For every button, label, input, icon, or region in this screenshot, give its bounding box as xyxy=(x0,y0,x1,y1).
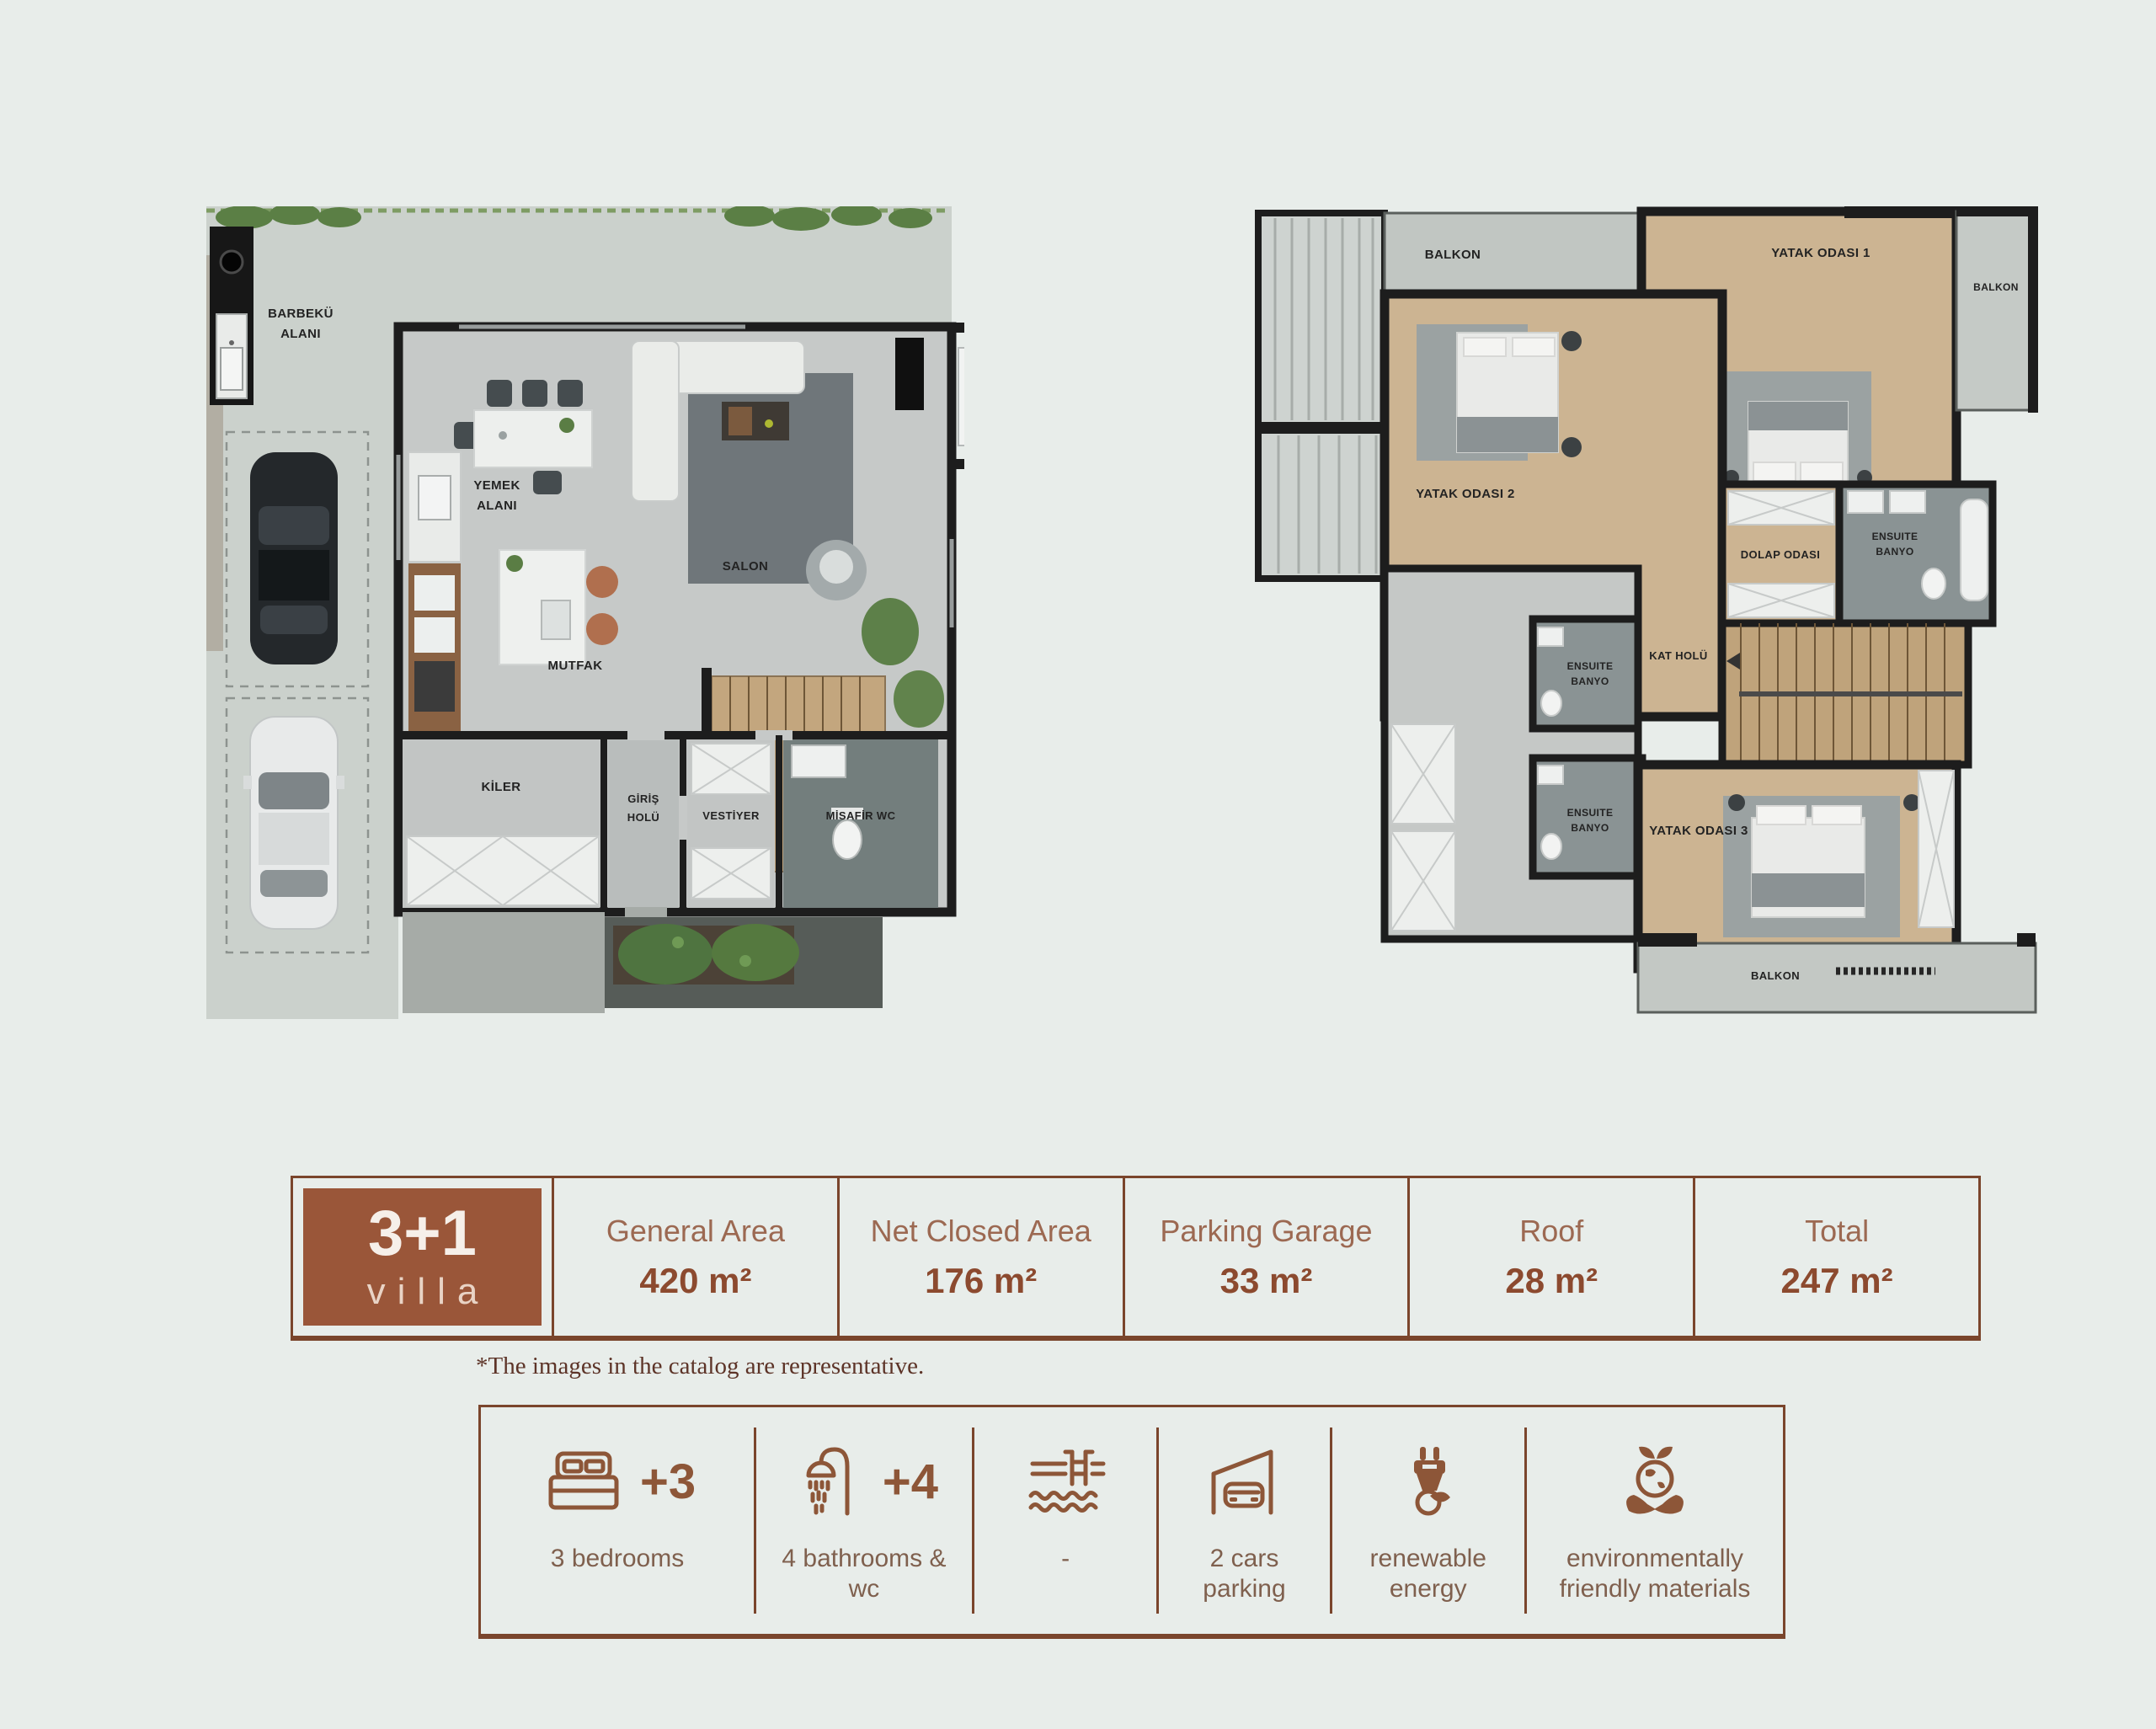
balcony-top-right xyxy=(1956,206,2038,413)
spec-label: General Area xyxy=(606,1214,785,1249)
room-label-yatak-2: YATAK ODASI 2 xyxy=(1416,487,1514,501)
room-label-balkon-tr: BALKON xyxy=(1973,281,2019,293)
upper-floor-plan: BALKON YATAK ODASI 1 BALKON YATAK ODASI … xyxy=(1255,206,2038,1019)
room-label-ensuite-3b: BANYO xyxy=(1571,822,1609,834)
spec-value: 28 m² xyxy=(1505,1261,1598,1301)
spec-net-closed-area: Net Closed Area 176 m² xyxy=(840,1178,1125,1336)
room-label-salon: SALON xyxy=(723,559,769,574)
spec-value: 420 m² xyxy=(639,1261,751,1301)
feature-label: 2 cars parking xyxy=(1167,1544,1321,1604)
stairs-upper xyxy=(1722,623,1968,765)
feature-energy: renewable energy xyxy=(1332,1427,1527,1614)
disclaimer-text: *The images in the catalog are represent… xyxy=(476,1353,924,1380)
spec-parking-garage: Parking Garage 33 m² xyxy=(1125,1178,1411,1336)
room-label-barbeku-1: BARBEKÜ xyxy=(268,307,334,321)
eco-icon xyxy=(1609,1440,1701,1524)
black-car xyxy=(250,452,338,664)
room-label-giris-2: HOLÜ xyxy=(627,811,659,824)
bathrooms-count: +4 xyxy=(883,1458,938,1507)
feature-label: environmentally friendly materials xyxy=(1535,1544,1774,1604)
plug-icon xyxy=(1386,1440,1470,1524)
feature-bedrooms: +3 3 bedrooms xyxy=(481,1427,756,1614)
room-label-dolap: DOLAP ODASI xyxy=(1741,548,1820,561)
pergola-panels xyxy=(1258,213,1388,579)
balcony-bottom xyxy=(1638,933,2036,1012)
pool-icon xyxy=(1019,1440,1112,1524)
room-label-yatak-3: YATAK ODASI 3 xyxy=(1649,824,1748,838)
spec-general-area: General Area 420 m² xyxy=(554,1178,840,1336)
room-label-ensuite-1b: BANYO xyxy=(1876,546,1913,558)
shower-icon xyxy=(790,1440,874,1524)
spec-value: 176 m² xyxy=(925,1261,1037,1301)
spec-value: 247 m² xyxy=(1781,1261,1893,1301)
room-label-balkon-tl: BALKON xyxy=(1425,248,1481,262)
spec-roof: Roof 28 m² xyxy=(1410,1178,1695,1336)
feature-parking: 2 cars parking xyxy=(1159,1427,1331,1614)
bedrooms-count: +3 xyxy=(640,1458,696,1507)
room-label-ensuite-2a: ENSUITE xyxy=(1567,660,1614,672)
feature-label: renewable energy xyxy=(1341,1544,1516,1604)
unit-type-cell: 3+1 villa xyxy=(293,1178,554,1336)
unit-type-badge: 3+1 villa xyxy=(303,1188,542,1326)
spec-label: Parking Garage xyxy=(1160,1214,1372,1249)
feature-materials: environmentally friendly materials xyxy=(1527,1427,1783,1614)
room-label-ensuite-2b: BANYO xyxy=(1571,675,1609,687)
unit-subtype: villa xyxy=(367,1271,490,1313)
feature-bathrooms: +4 4 bathrooms & wc xyxy=(756,1427,974,1614)
room-label-barbeku-2: ALANI xyxy=(280,327,321,341)
room-label-ensuite-1a: ENSUITE xyxy=(1872,531,1919,542)
wardrobe-kiler xyxy=(407,836,599,905)
feature-pool: - xyxy=(974,1427,1160,1614)
features-strip: +3 3 bedrooms +4 4 bathrooms & wc xyxy=(478,1405,1785,1639)
bed-icon xyxy=(539,1440,632,1524)
garden-area xyxy=(403,907,883,1013)
room-label-kiler: KİLER xyxy=(482,780,521,794)
room-label-yemek-2: ALANI xyxy=(477,499,517,513)
ensuite-1 xyxy=(1839,484,1993,623)
feature-label: 4 bathrooms & wc xyxy=(765,1544,963,1604)
ensuite-2 xyxy=(1533,619,1638,728)
spec-label: Roof xyxy=(1519,1214,1583,1249)
car-garage-icon xyxy=(1202,1440,1286,1524)
room-label-balkon-b: BALKON xyxy=(1751,969,1800,982)
white-car xyxy=(243,717,344,929)
room-label-yemek-1: YEMEK xyxy=(473,478,520,493)
room-label-mutfak: MUTFAK xyxy=(548,659,603,673)
barbecue-unit xyxy=(210,227,253,405)
ground-floor-plan: BARBEKÜ ALANI YEMEK ALANI xyxy=(206,206,964,1019)
spec-total: Total 247 m² xyxy=(1695,1178,1978,1336)
room-label-kat-holu: KAT HOLÜ xyxy=(1649,649,1707,662)
spec-label: Total xyxy=(1805,1214,1869,1249)
room-label-ensuite-3a: ENSUITE xyxy=(1567,807,1614,819)
room-label-misafir-wc: MİSAFİR WC xyxy=(826,809,896,822)
feature-label: 3 bedrooms xyxy=(551,1544,684,1574)
spec-value: 33 m² xyxy=(1220,1261,1313,1301)
spec-label: Net Closed Area xyxy=(871,1214,1091,1249)
spec-table: 3+1 villa General Area 420 m² Net Closed… xyxy=(291,1176,1981,1341)
room-label-yatak-1: YATAK ODASI 1 xyxy=(1771,246,1870,260)
room-label-vestiyer: VESTİYER xyxy=(702,809,760,822)
unit-type: 3+1 xyxy=(368,1202,477,1266)
room-label-giris-1: GİRİŞ xyxy=(627,792,659,805)
feature-label: - xyxy=(1061,1544,1070,1574)
